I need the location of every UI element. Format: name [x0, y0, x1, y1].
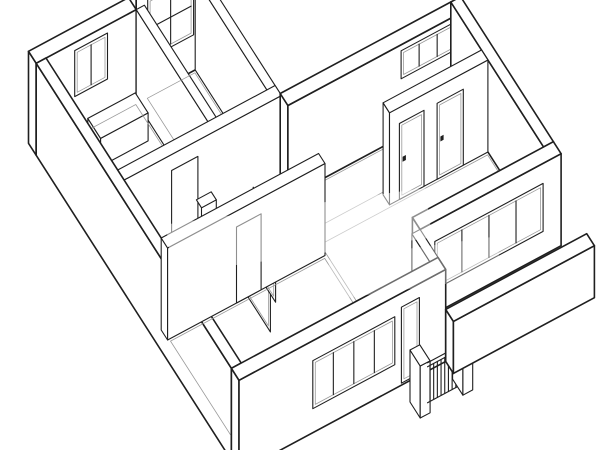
- balcony-pillar-left: [410, 345, 430, 418]
- floor-plan-drawing: [0, 0, 600, 450]
- drawing-canvas: [0, 0, 600, 450]
